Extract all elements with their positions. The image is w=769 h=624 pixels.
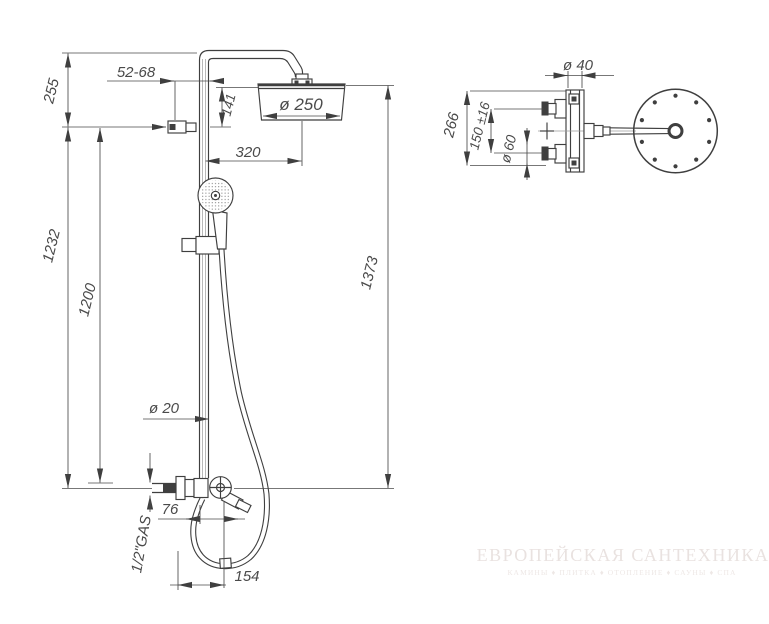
dim-bracket-to-inlet: 1232 bbox=[39, 227, 64, 264]
dim-pipe-diameter: ø 20 bbox=[149, 400, 180, 417]
inlet-connection-bottom bbox=[542, 145, 567, 164]
dim-inlet-thread: 1/2"GAS bbox=[128, 514, 155, 574]
technical-drawing: 52-68 255 141 ø 250 320 1232 1200 1373 ø… bbox=[0, 0, 769, 624]
dim-body-width: 266 bbox=[440, 110, 463, 140]
plan-dimensions: ø 40 266 150 ±16 ø 60 bbox=[440, 57, 614, 180]
dim-inlet-spacing: 150 ±16 bbox=[466, 100, 492, 151]
watermark-subtitle: КАМИНЫ ♦ ПЛИТКА ♦ ОТОПЛЕНИЕ ♦ САУНЫ ♦ СП… bbox=[507, 568, 736, 577]
dim-wall-offset: 52-68 bbox=[117, 64, 156, 81]
dim-top-to-bracket: 255 bbox=[40, 76, 63, 106]
dim-outlet-offset: 76 bbox=[162, 501, 179, 518]
front-view bbox=[152, 51, 345, 569]
front-dimensions: 52-68 255 141 ø 250 320 1232 1200 1373 ø… bbox=[39, 53, 394, 590]
watermark-title: ЕВРОПЕЙСКАЯ САНТЕХНИКА bbox=[477, 545, 769, 565]
overhead-head-top-view bbox=[634, 89, 718, 173]
technical-drawing-page: 52-68 255 141 ø 250 320 1232 1200 1373 ø… bbox=[0, 0, 769, 624]
dim-total-height: 1373 bbox=[357, 254, 382, 291]
wall-bracket bbox=[168, 121, 196, 133]
dim-hose-extension: 154 bbox=[234, 568, 259, 585]
dim-rail-length: 1200 bbox=[75, 281, 100, 318]
dim-plan-pipe-diameter: ø 40 bbox=[563, 57, 594, 74]
plan-view bbox=[538, 89, 717, 173]
watermark: ЕВРОПЕЙСКАЯ САНТЕХНИКА КАМИНЫ ♦ ПЛИТКА ♦… bbox=[477, 545, 769, 577]
shower-hose bbox=[193, 249, 267, 568]
inlet-connection-top bbox=[542, 100, 567, 119]
mixer-body bbox=[538, 123, 636, 140]
dim-escutcheon-diameter: ø 60 bbox=[497, 133, 519, 164]
dim-arm-reach: 320 bbox=[235, 144, 261, 161]
dim-head-diameter: ø 250 bbox=[279, 95, 323, 114]
slider-bracket bbox=[182, 237, 219, 255]
inlet-thread-section bbox=[163, 483, 176, 493]
